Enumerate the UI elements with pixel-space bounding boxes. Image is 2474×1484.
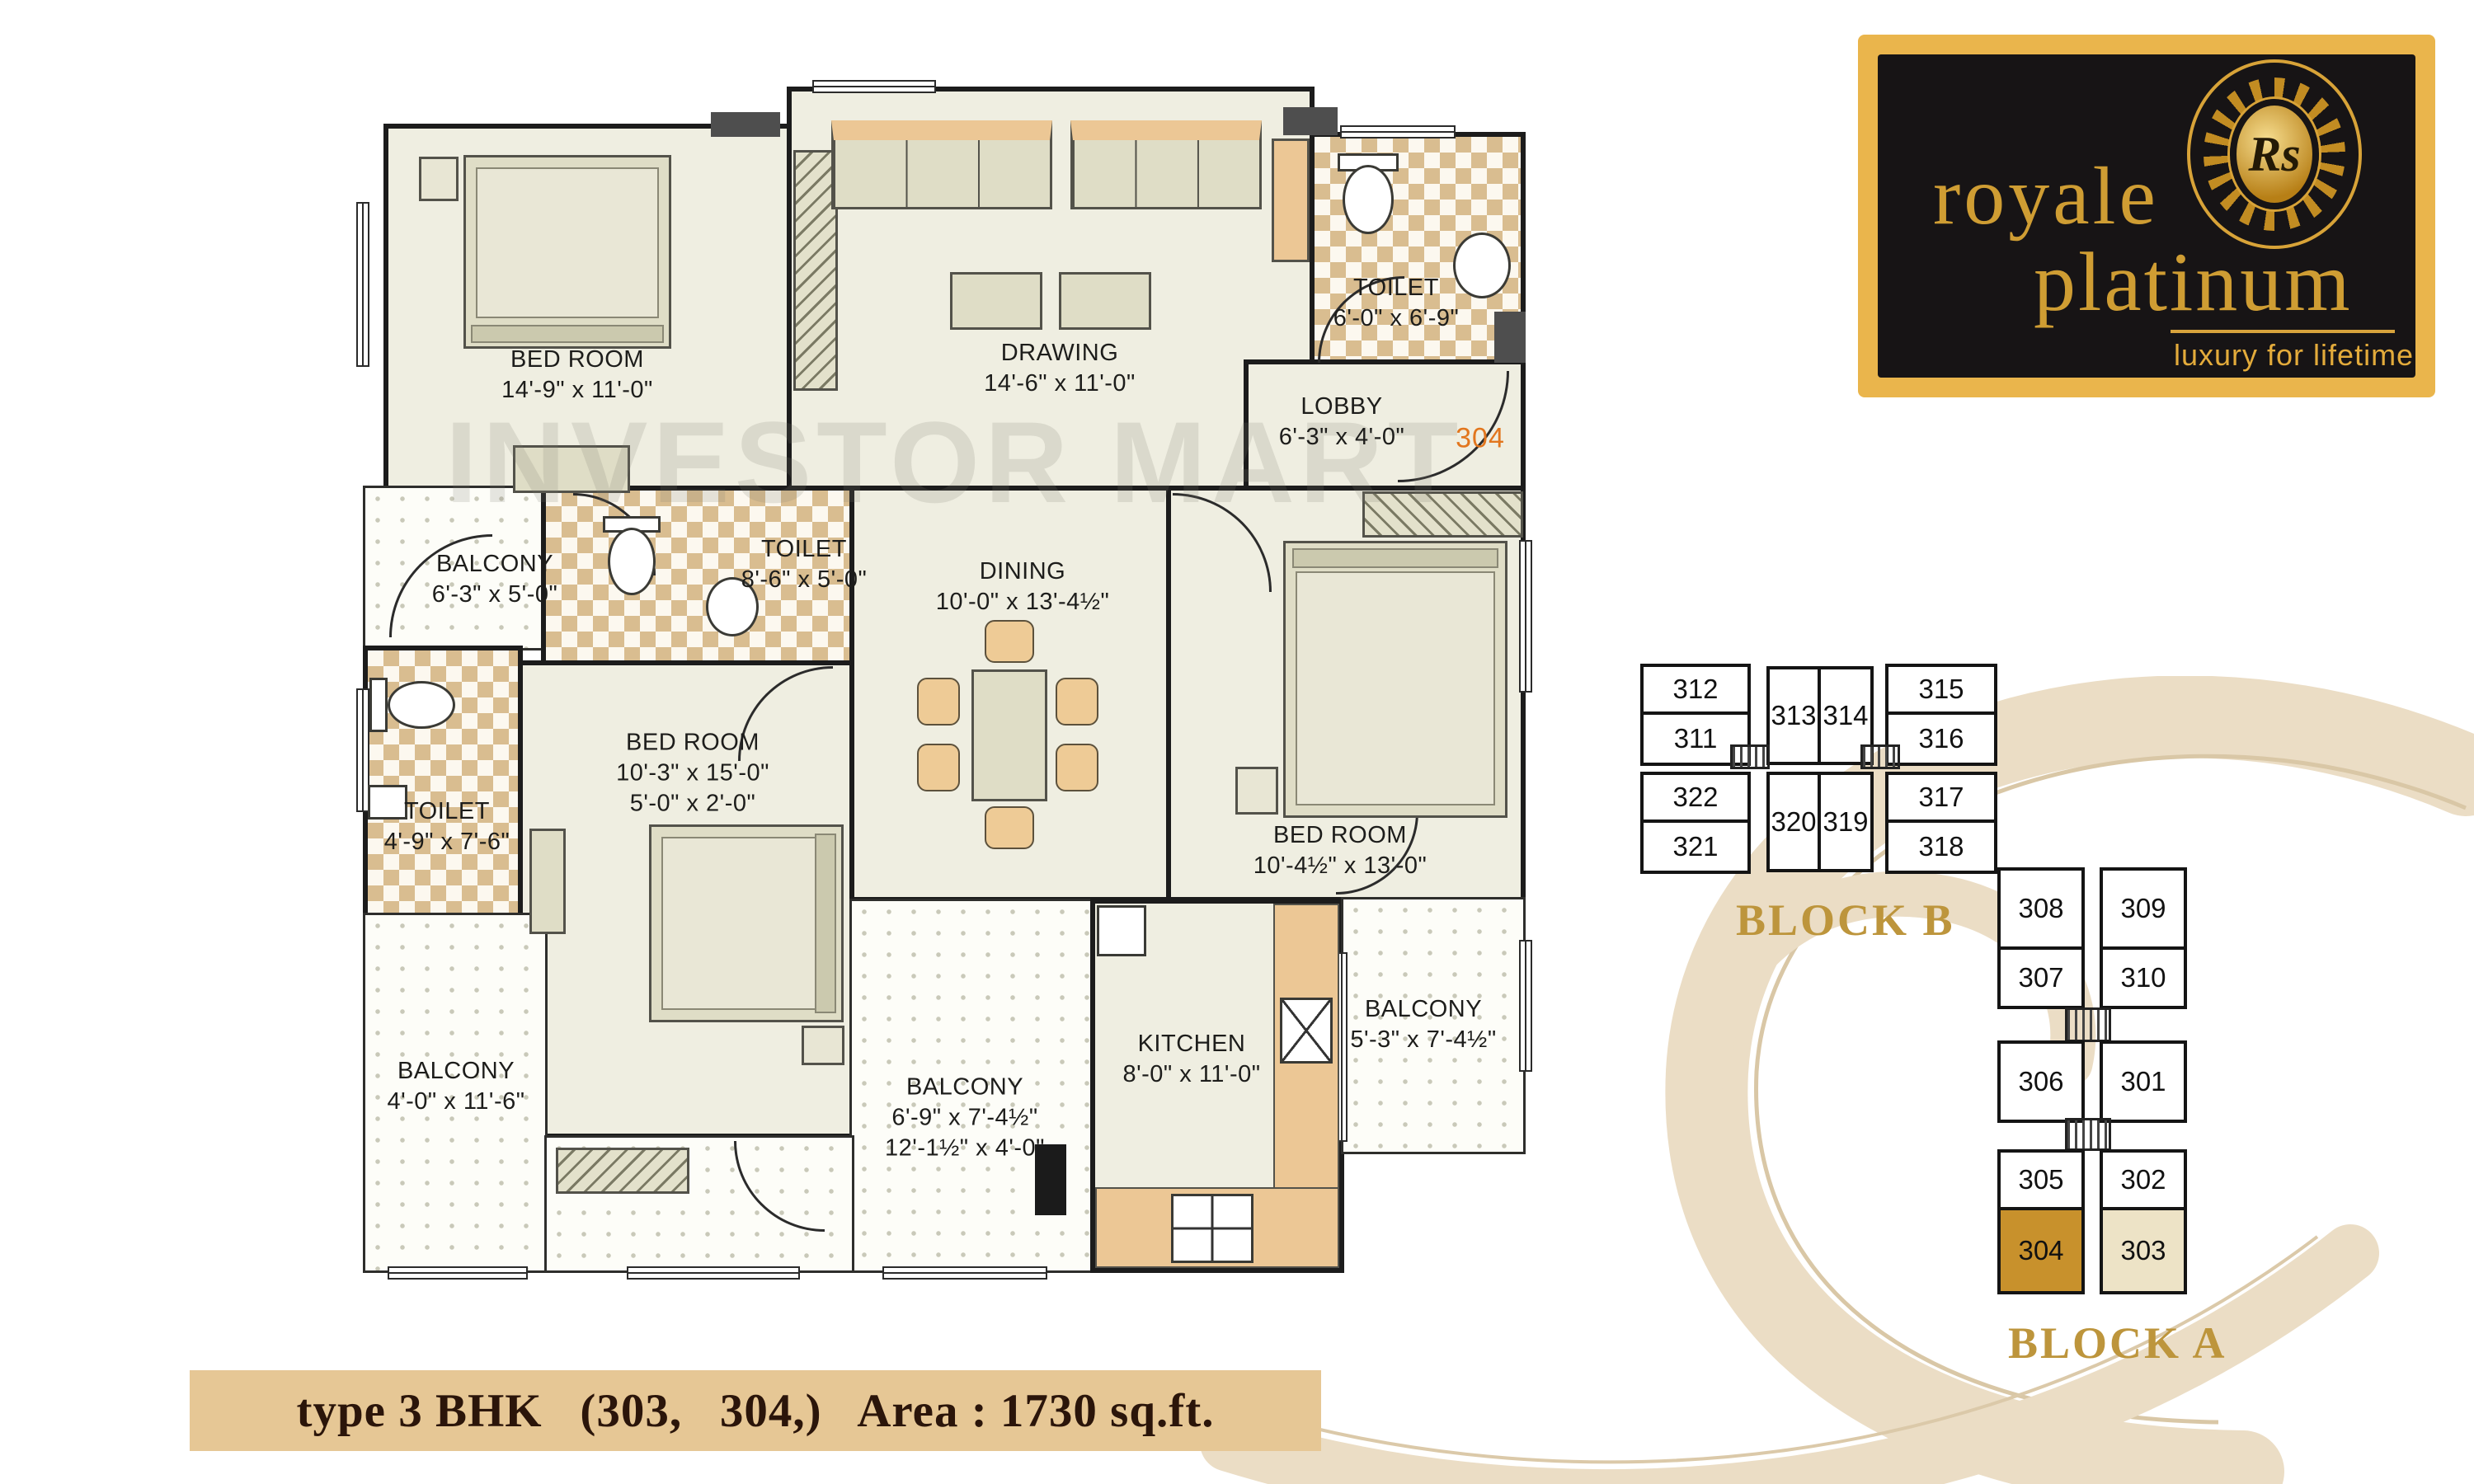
brochure-page: INVESTOR MART BED ROOM14'-9" x 11'-0" DR… xyxy=(0,0,2474,1484)
monogram: Rs xyxy=(2248,126,2300,183)
sun-emblem-icon: Rs xyxy=(2230,99,2319,209)
logo-tagline: luxury for lifetime xyxy=(2174,338,2414,373)
footer-bar: type 3 BHK (303, 304,) Area : 1730 sq.ft… xyxy=(190,1370,1321,1451)
logo-divider xyxy=(2171,330,2395,333)
footer-text: type 3 BHK (303, 304,) Area : 1730 sq.ft… xyxy=(296,1384,1214,1438)
logo-name-line2: platinum xyxy=(2034,234,2353,331)
logo-name-line1: royale xyxy=(1933,148,2159,243)
brand-logo: Rs royale platinum luxury for lifetime xyxy=(0,0,2474,1484)
